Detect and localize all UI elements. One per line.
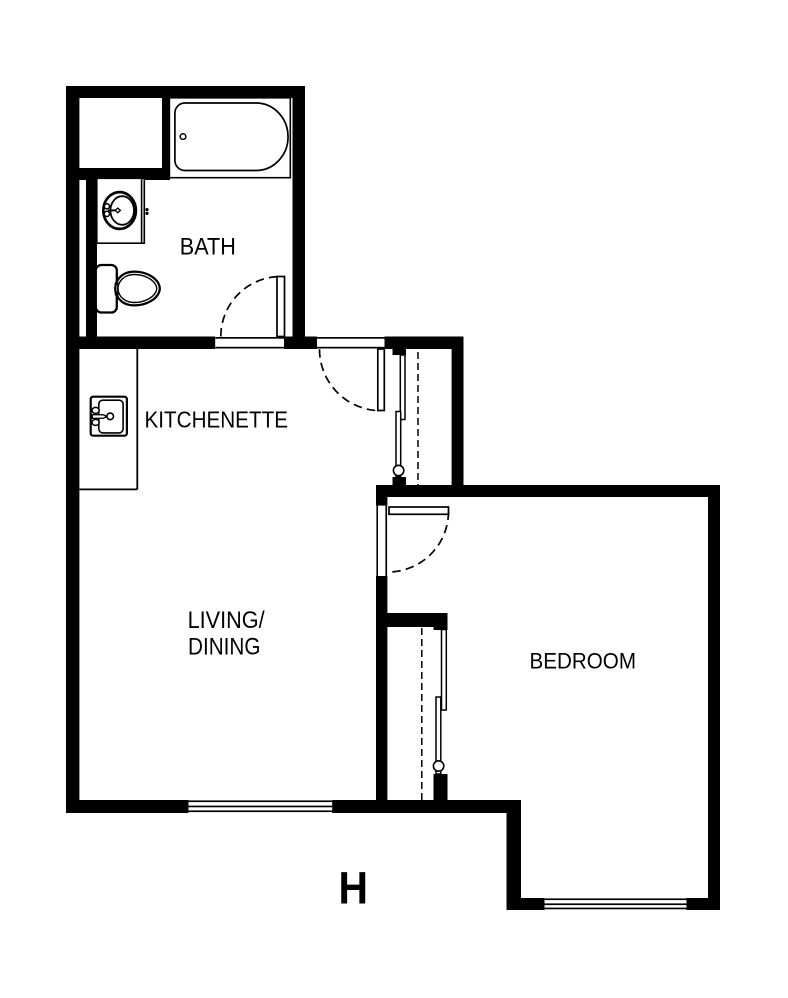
- svg-text:H: H: [339, 863, 369, 914]
- svg-text:BATH: BATH: [180, 234, 236, 261]
- svg-text:LIVING/: LIVING/: [188, 607, 265, 634]
- svg-text:KITCHENETTE: KITCHENETTE: [145, 407, 289, 433]
- svg-text:BEDROOM: BEDROOM: [530, 648, 637, 673]
- svg-text:DINING: DINING: [188, 633, 261, 660]
